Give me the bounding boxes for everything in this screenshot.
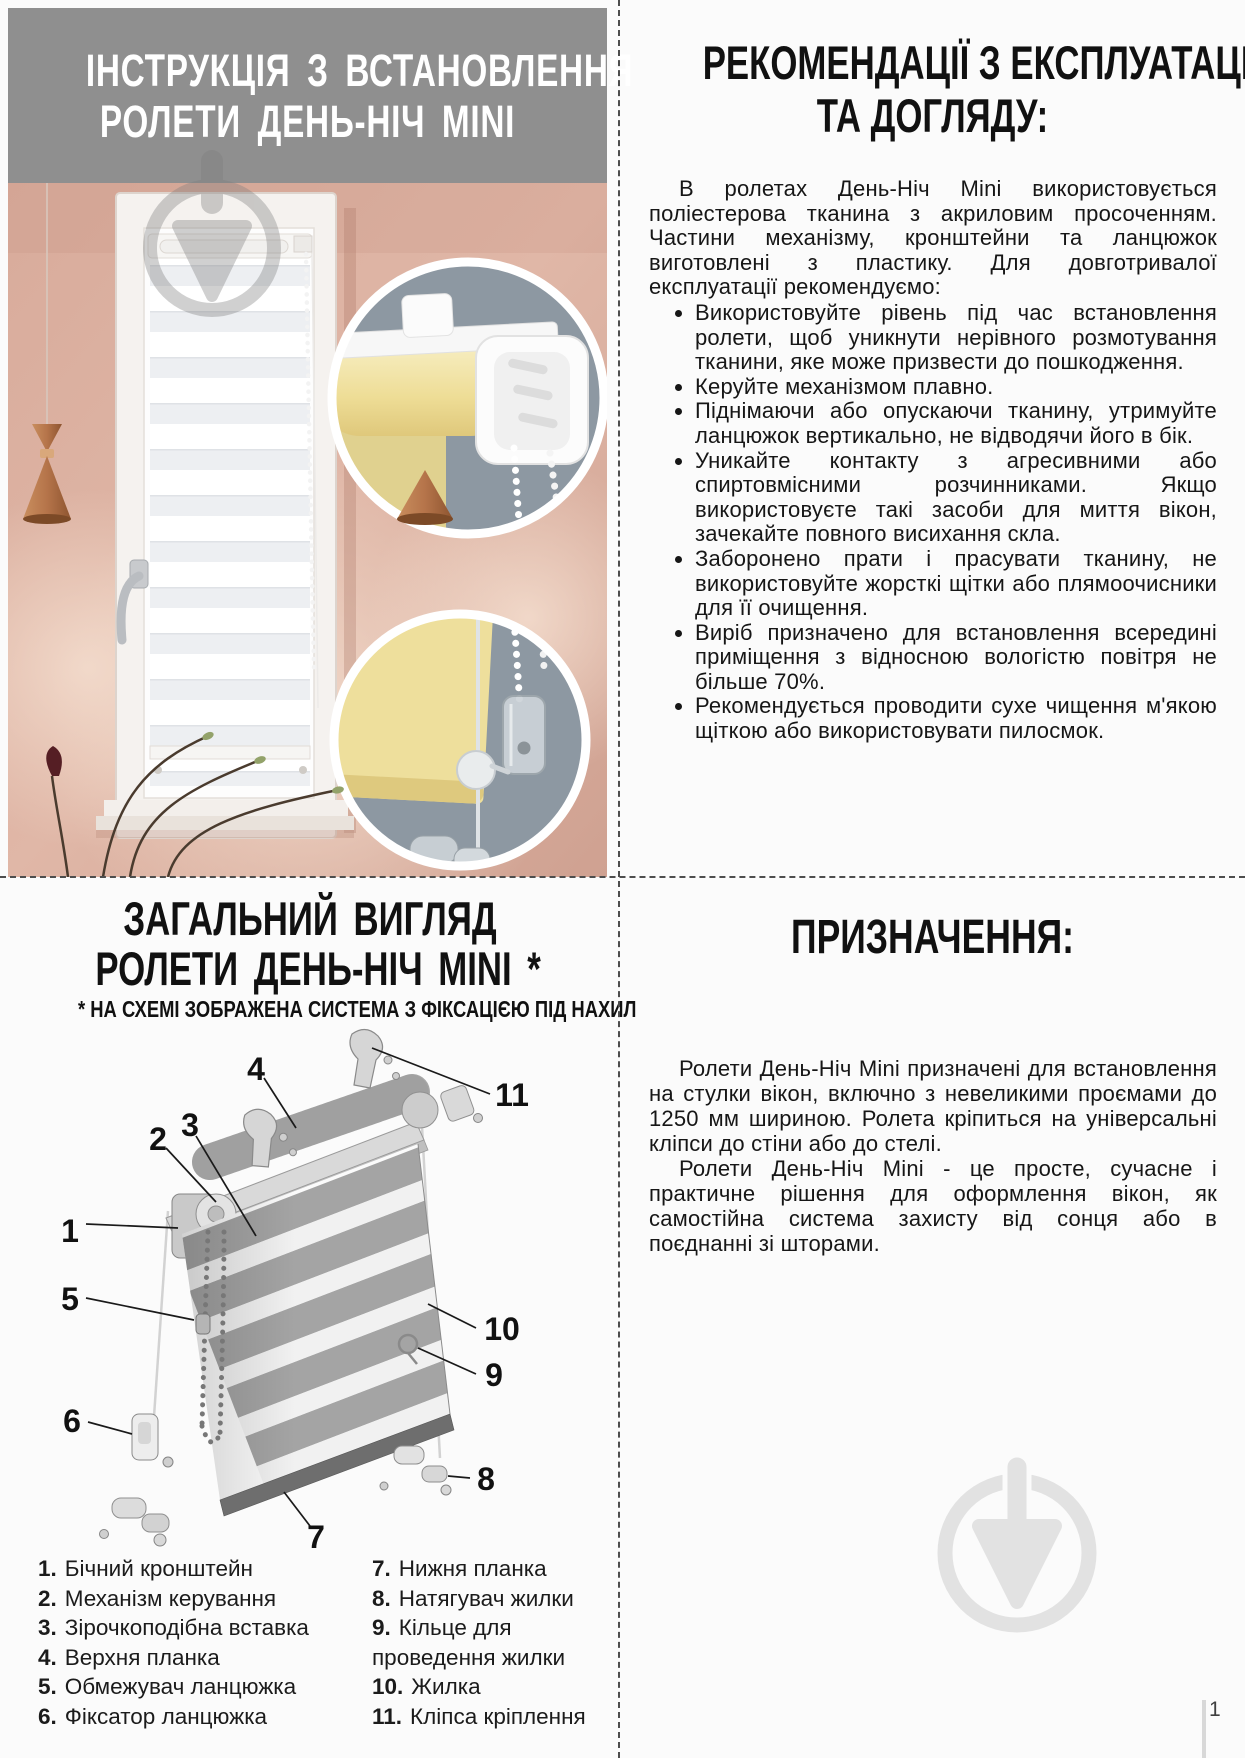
legend-item: 9.Кільце для проведення жилки [372, 1613, 604, 1672]
blind-fabric [150, 236, 310, 786]
brand-watermark-logo [920, 1430, 1120, 1640]
callout-6: 6 [63, 1403, 81, 1439]
horizontal-dashed-divider [0, 876, 1245, 878]
line-tensioner [503, 696, 545, 774]
blind-bottom-rail [150, 746, 310, 759]
care-section-heading: РЕКОМЕНДАЦІЇ З ЕКСПЛУАТАЦІЇ ТА ДОГЛЯДУ: [622, 36, 1243, 142]
callout-11: 11 [495, 1077, 529, 1113]
purpose-title: ПРИЗНАЧЕННЯ: [622, 912, 1243, 964]
overview-title-line2: РОЛЕТИ ДЕНЬ-НІЧ MINI * [20, 944, 600, 994]
callout-3: 3 [181, 1107, 199, 1143]
mounting-clip [350, 1029, 400, 1088]
legend-item: 7.Нижня планка [372, 1554, 604, 1584]
chain-limiter [196, 1314, 210, 1334]
window-sill [96, 800, 354, 838]
care-bullet: Заборонено прати і прасувати тканину, не… [695, 547, 1217, 621]
care-bullet: Рекомендується проводити сухе чищення м'… [695, 694, 1217, 743]
callout-4: 4 [247, 1051, 265, 1087]
legend-item: 6.Фіксатор ланцюжка [38, 1702, 356, 1732]
callout-7: 7 [307, 1519, 325, 1551]
end-cap [402, 1092, 438, 1128]
care-bullet: Виріб призначено для встановлення всеред… [695, 621, 1217, 695]
care-bullet-list: Використовуйте рівень під час встановлен… [649, 301, 1217, 744]
care-bullet: Уникайте контакту з агресивними або спир… [695, 449, 1217, 547]
purpose-section-body: Ролети День-Ніч Mini призначені для вста… [649, 1056, 1217, 1256]
purpose-section-heading: ПРИЗНАЧЕННЯ: [622, 912, 1243, 964]
callout-9: 9 [485, 1357, 503, 1393]
legend-item: 3.Зірочкоподібна вставка [38, 1613, 356, 1643]
legend-item: 2.Механізм керування [38, 1584, 356, 1614]
filament-left [152, 1211, 168, 1446]
page-number: 1 [1209, 1698, 1221, 1722]
callout-2: 2 [149, 1121, 167, 1157]
instruction-page: ІНСТРУКЦІЯ З ВСТАНОВЛЕННЯ РОЛЕТИ ДЕНЬ-НІ… [0, 0, 1245, 1758]
callout-8: 8 [477, 1461, 495, 1497]
overview-subtitle: * НА СХЕМІ ЗОБРАЖЕНА СИСТЕМА З ФІКСАЦІЄЮ… [20, 996, 600, 1023]
install-title-line2: РОЛЕТИ ДЕНЬ-НІЧ MINI [8, 96, 607, 147]
callout-5: 5 [61, 1281, 79, 1317]
care-title-line2: ТА ДОГЛЯДУ: [622, 89, 1243, 142]
overview-title-line1: ЗАГАЛЬНИЙ ВИГЛЯД [20, 894, 600, 944]
page-number-bar [1202, 1700, 1206, 1758]
window-photo [8, 148, 607, 877]
purpose-paragraph-2: Ролети День-Ніч Mini - це просте, сучасн… [649, 1156, 1217, 1256]
care-bullet: Використовуйте рівень під час встановлен… [695, 301, 1217, 375]
right-bracket-piece [439, 1084, 475, 1122]
legend-item: 4.Верхня планка [38, 1643, 356, 1673]
callout-10: 10 [484, 1311, 520, 1347]
clutch-mechanism [476, 336, 588, 464]
purpose-paragraph-1: Ролети День-Ніч Mini призначені для вста… [649, 1056, 1217, 1156]
roller-blind-diagram: 1 2 3 4 5 6 7 8 9 10 11 [20, 1026, 600, 1551]
legend-item: 10.Жилка [372, 1672, 604, 1702]
vertical-dashed-divider [618, 0, 620, 1758]
chain-fixator [100, 1414, 174, 1546]
callout-1: 1 [61, 1213, 79, 1249]
window-with-blind [96, 193, 356, 838]
legend-item: 1.Бічний кронштейн [38, 1554, 356, 1584]
legend-item: 8.Натягувач жилки [372, 1584, 604, 1614]
care-title-line1: РЕКОМЕНДАЦІЇ З ЕКСПЛУАТАЦІЇ [622, 36, 1243, 89]
parts-legend-right: 7.Нижня планка 8.Натягувач жилки 9.Кільц… [372, 1554, 604, 1731]
legend-item: 11.Кліпса кріплення [372, 1702, 604, 1732]
care-section-body: В ролетах День-Ніч Mini використовується… [649, 177, 1217, 744]
care-bullet: Керуйте механізмом плавно. [695, 375, 1217, 400]
install-title-line1: ІНСТРУКЦІЯ З ВСТАНОВЛЕННЯ [8, 45, 607, 96]
care-bullet: Піднімаючи або опускаючи тканину, утриму… [695, 399, 1217, 448]
care-intro: В ролетах День-Ніч Mini використовується… [649, 177, 1217, 300]
overview-section-heading: ЗАГАЛЬНИЙ ВИГЛЯД РОЛЕТИ ДЕНЬ-НІЧ MINI * [20, 894, 600, 994]
legend-item: 5.Обмежувач ланцюжка [38, 1672, 356, 1702]
parts-legend-left: 1.Бічний кронштейн 2.Механізм керування … [38, 1554, 356, 1731]
